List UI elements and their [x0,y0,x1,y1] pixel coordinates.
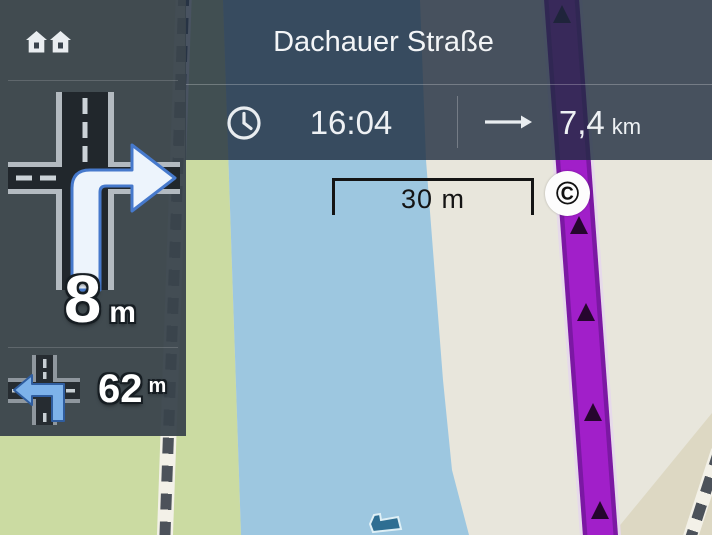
next-street-name[interactable]: Dachauer Straße [185,0,582,85]
primary-maneuver-distance: 8m [0,260,186,340]
primary-distance-unit: m [109,296,136,329]
copyright-symbol: © [556,175,580,212]
secondary-distance-unit: m [149,375,167,397]
top-navigation-bar: Dachauer Straße 16:04 7,4km [185,0,712,160]
sidebar-divider [8,347,178,348]
map-scale-bar: 30 m [332,178,534,215]
home-icon [50,30,71,53]
maneuver-sidebar: 8m 62m [0,0,186,436]
map-pier-feature [370,514,401,532]
remaining-distance[interactable]: 7,4km [515,85,685,160]
home-icon [26,30,47,53]
secondary-maneuver-distance: 62m [98,366,166,412]
arrival-time[interactable]: 16:04 [245,85,457,160]
turn-left-arrow-icon [8,355,80,425]
navigation-screen: 30 m © Dachauer Straße 16:04 7,4km [0,0,712,535]
secondary-distance-value: 62 [98,367,143,411]
home-buttons[interactable] [26,30,71,53]
primary-distance-value: 8 [64,262,101,337]
topbar-vertical-divider [457,96,458,148]
sidebar-divider [8,80,178,81]
remaining-distance-unit: km [612,114,641,139]
copyright-badge: © [545,171,590,216]
map-scale-label: 30 m [335,184,531,215]
remaining-distance-value: 7,4 [559,104,605,141]
